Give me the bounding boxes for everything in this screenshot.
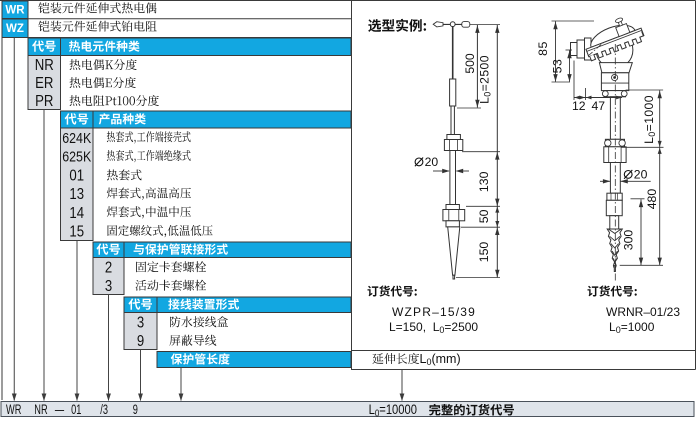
svg-text:2: 2 (105, 259, 112, 276)
svg-text:WR: WR (6, 401, 22, 418)
svg-text:NR: NR (34, 401, 48, 418)
svg-text:L=150, L0=2500: L=150, L0=2500 (389, 320, 478, 335)
svg-text:—: — (55, 401, 64, 418)
svg-text:9: 9 (133, 401, 138, 418)
svg-text:14: 14 (69, 205, 84, 222)
svg-text:12: 12 (572, 99, 586, 113)
svg-text:L0(mm): L0(mm) (420, 352, 461, 367)
svg-text:01: 01 (69, 167, 84, 184)
svg-text:WRNR–01/23: WRNR–01/23 (606, 305, 680, 319)
svg-text:3: 3 (137, 314, 144, 331)
svg-text:625K: 625K (62, 148, 92, 165)
svg-text:53: 53 (551, 59, 565, 74)
svg-text:15: 15 (69, 224, 84, 241)
svg-text:WZPR–15/39: WZPR–15/39 (392, 305, 476, 319)
svg-text:300: 300 (622, 230, 636, 251)
svg-text:480: 480 (645, 189, 659, 210)
svg-text:500: 500 (463, 53, 477, 74)
svg-text:ER: ER (35, 75, 53, 92)
svg-text:NR: NR (35, 57, 54, 74)
svg-text:3: 3 (105, 278, 112, 295)
svg-text:85: 85 (536, 41, 550, 56)
svg-text:50: 50 (477, 209, 491, 223)
svg-text:150: 150 (477, 242, 491, 263)
svg-text:9: 9 (137, 333, 144, 350)
svg-text:WR: WR (5, 4, 25, 16)
svg-text:47: 47 (592, 99, 606, 113)
svg-text:20: 20 (425, 155, 439, 169)
svg-text:WZ: WZ (6, 23, 24, 35)
svg-text:13: 13 (69, 186, 84, 203)
svg-text:20: 20 (634, 168, 648, 182)
svg-text:130: 130 (477, 171, 491, 192)
svg-text:01: 01 (71, 401, 82, 418)
svg-text:/3: /3 (100, 401, 108, 418)
svg-text:PR: PR (35, 93, 53, 110)
svg-text:624K: 624K (62, 129, 92, 146)
